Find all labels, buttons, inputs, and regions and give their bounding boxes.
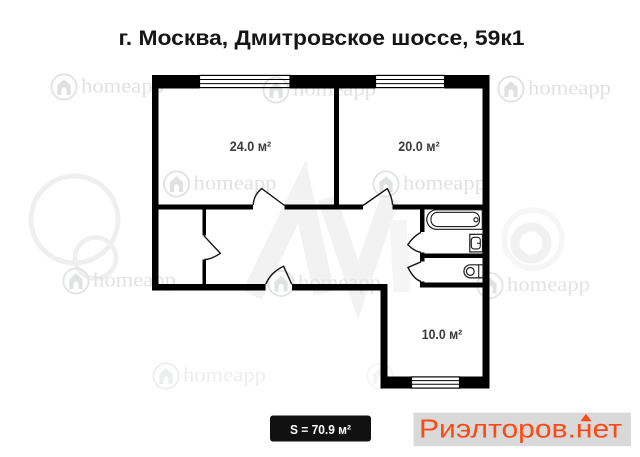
svg-text:10.0 м²: 10.0 м² (422, 326, 463, 342)
svg-text:S = 70.9 м²: S = 70.9 м² (290, 423, 351, 437)
svg-text:20.0 м²: 20.0 м² (398, 138, 440, 154)
svg-text:Риэлторов.нет: Риэлторов.нет (419, 413, 622, 443)
svg-text:24.0 м²: 24.0 м² (230, 138, 272, 154)
svg-text:г. Москва, Дмитровское шоссе,: г. Москва, Дмитровское шоссе, 59к1 (119, 26, 525, 50)
